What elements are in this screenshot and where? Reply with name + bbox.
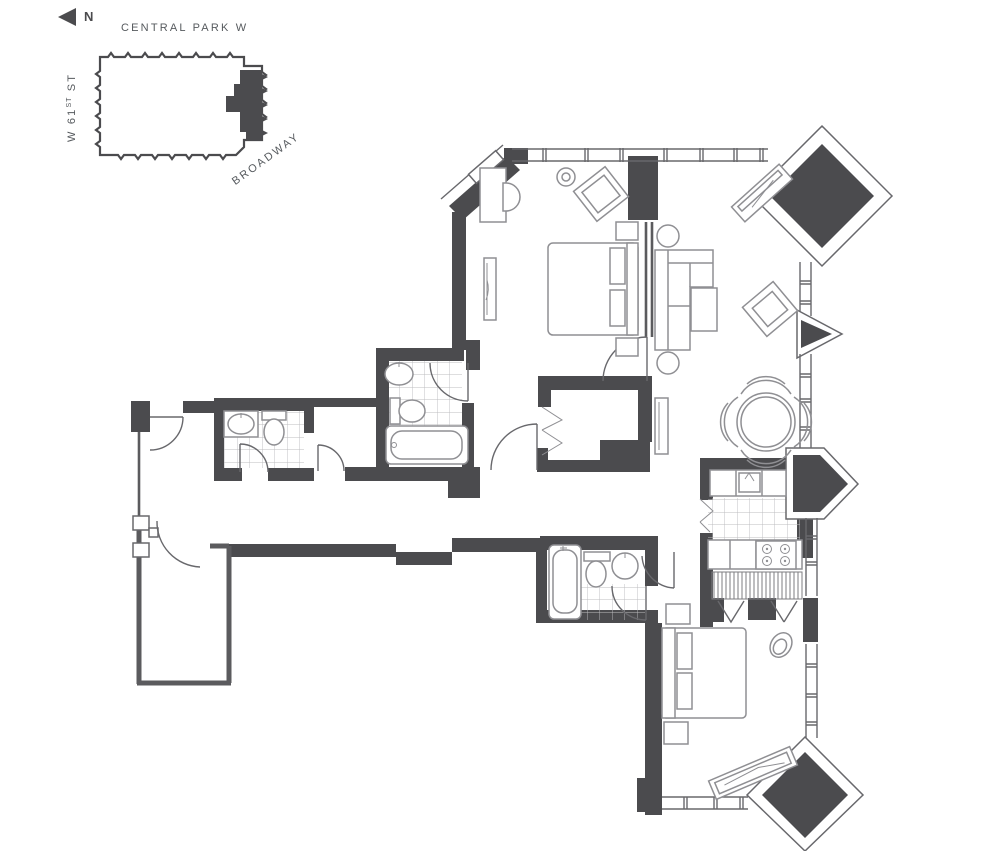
sink-round [612,553,638,579]
floor-plan-drawing [0,0,1000,851]
bed [662,628,746,718]
toilet [584,552,610,587]
unit-location-marker [226,70,268,140]
armchair [574,167,629,222]
nightstand [664,722,688,744]
bathtub [386,426,468,464]
round-decor [557,168,575,186]
sectional-sofa [655,250,717,350]
bathtub [549,545,581,619]
north-arrow-icon [58,8,76,26]
floor-plan-page: N CENTRAL PARK W W 61ST ST BROADWAY [0,0,1000,851]
sink-oval [224,411,258,437]
dresser [484,258,496,320]
side-table [657,352,679,374]
master-bedroom [480,167,638,356]
dining-chair [741,377,791,394]
side-table [657,225,679,247]
street-label-w61st: W 61ST ST [66,73,78,142]
street-label-central-park-w: CENTRAL PARK W [121,22,248,34]
accent-chair [742,282,797,337]
second-bedroom [662,604,797,799]
stove [756,541,796,569]
master-bed [548,243,638,335]
dining-chair [721,397,738,447]
chair [766,629,797,662]
dining-table [737,393,795,451]
nightstand [616,338,638,356]
sink-oval [385,362,413,385]
toilet [390,398,425,424]
cabinet [655,398,668,454]
nightstand [666,604,690,624]
toilet [262,411,286,445]
north-label: N [84,9,94,24]
desk-chair [503,183,520,211]
nightstand [616,222,638,240]
desk [480,168,506,222]
dining-chair [794,397,811,447]
